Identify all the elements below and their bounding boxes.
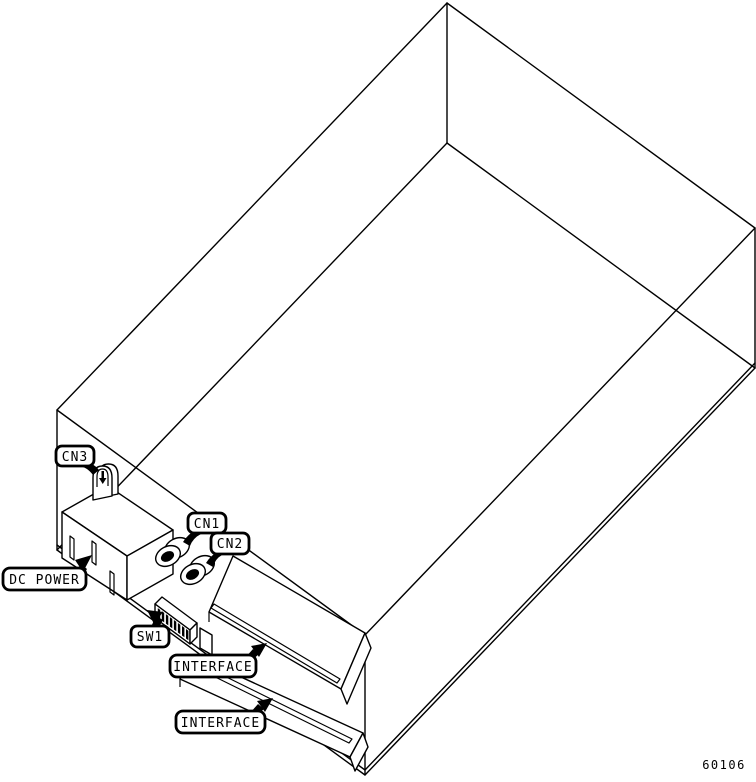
callout-interface-top: INTERFACE xyxy=(170,643,267,677)
box-hidden-bottom-right-edge xyxy=(447,143,755,368)
enclosure-wireframe xyxy=(57,3,755,775)
callout-label: CN1 xyxy=(194,517,220,532)
figure-canvas: CN3 CN1 CN2 DC POWER SW1 INTERFACE INTER… xyxy=(0,0,756,782)
callout-label: CN3 xyxy=(62,450,88,465)
callout-dc-power: DC POWER xyxy=(3,555,92,590)
figure-number: 60106 xyxy=(702,758,746,772)
callout-label: DC POWER xyxy=(9,573,80,588)
callout-label: INTERFACE xyxy=(173,660,252,675)
callout-label: SW1 xyxy=(137,630,163,645)
isometric-diagram: CN3 CN1 CN2 DC POWER SW1 INTERFACE INTER… xyxy=(0,0,756,782)
callout-label: INTERFACE xyxy=(181,716,260,731)
callout-cn3: CN3 xyxy=(56,446,99,475)
callout-label: CN2 xyxy=(217,537,243,552)
